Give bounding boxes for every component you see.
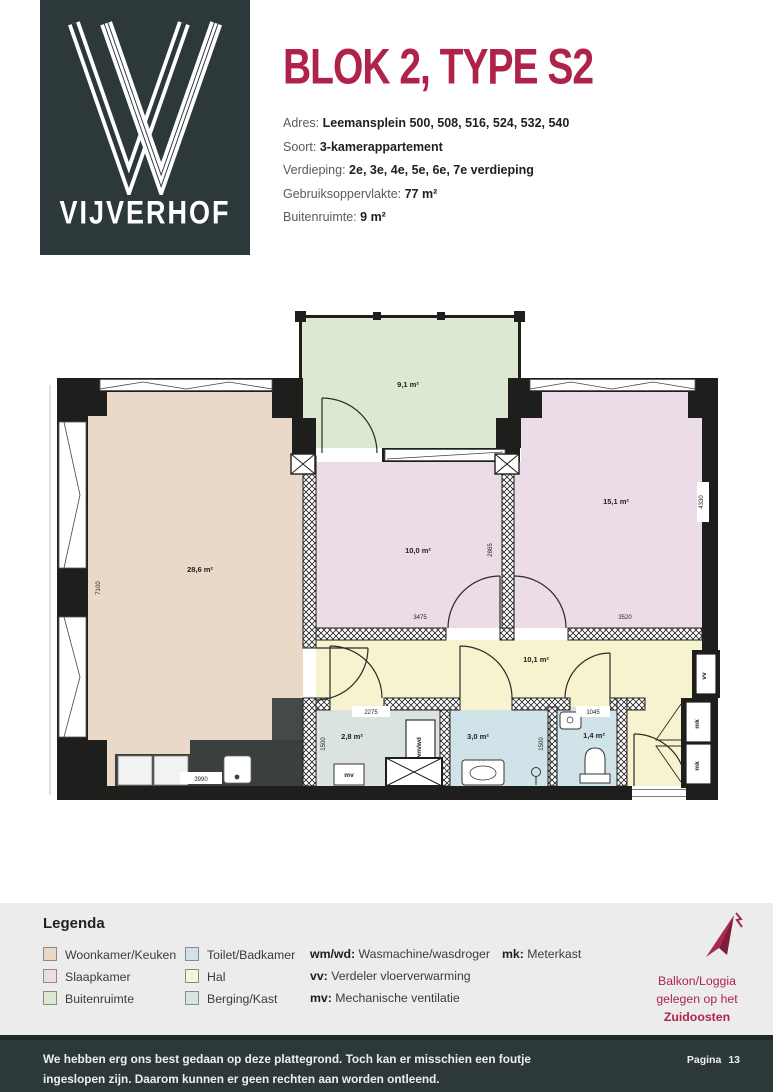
compass-line2: gelegen op het bbox=[622, 990, 772, 1008]
footer: We hebben erg ons best gedaan op deze pl… bbox=[0, 1035, 773, 1092]
swatch-outdoor bbox=[43, 991, 57, 1005]
compass: Balkon/Loggia gelegen op het Zuidoosten bbox=[622, 911, 772, 1026]
brochure-page: VIJVERHOF BLOK 2, TYPE S2 Adres: Leemans… bbox=[0, 0, 773, 1092]
compass-line1: Balkon/Loggia bbox=[622, 972, 772, 990]
label-vv: vv bbox=[701, 672, 708, 680]
disclaimer: We hebben erg ons best gedaan op deze pl… bbox=[43, 1049, 531, 1089]
room-living bbox=[88, 392, 303, 786]
info-value: 9 m² bbox=[360, 210, 386, 224]
info-row-soort: Soort: 3-kamerappartement bbox=[283, 136, 569, 160]
vijverhof-logo-icon bbox=[40, 10, 250, 195]
page-title: BLOK 2, TYPE S2 bbox=[283, 40, 593, 96]
info-label: Soort: bbox=[283, 140, 316, 154]
legend: Legenda Woonkamer/Keuken Slaapkamer Buit… bbox=[0, 903, 773, 1035]
info-label: Verdieping: bbox=[283, 163, 346, 177]
window-balcony bbox=[385, 450, 505, 461]
logo-wordmark: VIJVERHOF bbox=[40, 195, 250, 232]
legend-label: Woonkamer/Keuken bbox=[65, 948, 176, 962]
swatch-hall bbox=[185, 969, 199, 983]
window-left-2 bbox=[59, 617, 86, 737]
abbr-label: Mechanische ventilatie bbox=[335, 991, 459, 1005]
legend-label: Hal bbox=[207, 970, 225, 984]
window-left-1 bbox=[59, 422, 86, 568]
dim-bedroom1-width: 3475 bbox=[413, 615, 427, 621]
legend-title: Legenda bbox=[43, 915, 105, 932]
compass-text: Balkon/Loggia gelegen op het Zuidoosten bbox=[622, 972, 772, 1026]
legend-abbr-mv: mv: Mechanische ventilatie bbox=[310, 991, 460, 1005]
dim-bedroom2-height: 4330 bbox=[699, 495, 705, 509]
dim-bathroom-height: 1500 bbox=[539, 737, 545, 751]
label-balcony-area: 9,1 m² bbox=[397, 380, 419, 389]
legend-label: Toilet/Badkamer bbox=[207, 948, 295, 962]
label-living-area: 28,6 m² bbox=[187, 565, 213, 574]
disclaimer-line2: ingeslopen zijn. Daarom kunnen er geen r… bbox=[43, 1069, 531, 1089]
room-bedroom1 bbox=[316, 462, 502, 628]
label-mk-1: mk bbox=[694, 719, 701, 729]
label-hall-area: 10,1 m² bbox=[523, 655, 549, 664]
swatch-wet bbox=[185, 947, 199, 961]
info-value: 77 m² bbox=[405, 187, 438, 201]
abbr-key: mk: bbox=[502, 947, 524, 961]
abbr-label: Verdeler vloerverwarming bbox=[331, 969, 470, 983]
balcony-door-gap bbox=[316, 448, 382, 462]
legend-item-bedroom: Slaapkamer bbox=[43, 969, 131, 983]
legend-label: Buitenruimte bbox=[65, 992, 134, 1006]
info-row-oppervlakte: Gebruiksoppervlakte: 77 m² bbox=[283, 183, 569, 207]
info-value: 3-kamerappartement bbox=[320, 140, 443, 154]
abbr-key: mv: bbox=[310, 991, 332, 1005]
info-label: Buitenruimte: bbox=[283, 210, 357, 224]
disclaimer-line1: We hebben erg ons best gedaan op deze pl… bbox=[43, 1049, 531, 1069]
abbr-label: Wasmachine/wasdroger bbox=[359, 947, 490, 961]
compass-icon bbox=[700, 911, 746, 961]
swatch-living bbox=[43, 947, 57, 961]
label-bedroom1-area: 10,0 m² bbox=[405, 546, 431, 555]
legend-abbr-wmwd: wm/wd: Wasmachine/wasdroger bbox=[310, 947, 490, 961]
page-num: 13 bbox=[728, 1054, 740, 1066]
room-bedroom2 bbox=[514, 392, 702, 628]
logo: VIJVERHOF bbox=[40, 0, 250, 255]
info-row-buitenruimte: Buitenruimte: 9 m² bbox=[283, 206, 569, 230]
dim-bedroom1-height: 2865 bbox=[488, 543, 494, 557]
legend-item-wet: Toilet/Badkamer bbox=[185, 947, 295, 961]
label-bedroom2-area: 15,1 m² bbox=[603, 497, 629, 506]
dim-living-height: 7100 bbox=[96, 581, 102, 595]
info-label: Gebruiksoppervlakte: bbox=[283, 187, 401, 201]
legend-label: Slaapkamer bbox=[65, 970, 131, 984]
legend-label: Berging/Kast bbox=[207, 992, 277, 1006]
legend-item-living: Woonkamer/Keuken bbox=[43, 947, 176, 961]
label-storage-area: 2,8 m² bbox=[341, 732, 363, 741]
info-row-verdieping: Verdieping: 2e, 3e, 4e, 5e, 6e, 7e verdi… bbox=[283, 159, 569, 183]
page-label: Pagina bbox=[687, 1054, 721, 1066]
dim-bedroom2-width: 3520 bbox=[618, 615, 632, 621]
swatch-storage bbox=[185, 991, 199, 1005]
legend-abbr-mk: mk: Meterkast bbox=[502, 947, 581, 961]
label-mk-2: mk bbox=[694, 761, 701, 771]
dim-storage-width: 2275 bbox=[364, 710, 378, 716]
legend-item-storage: Berging/Kast bbox=[185, 991, 277, 1005]
floor-plan: 28,6 m² 9,1 m² 10,0 m² 15,1 m² 10,1 m² 2… bbox=[0, 270, 773, 892]
legend-item-hall: Hal bbox=[185, 969, 225, 983]
info-row-adres: Adres: Leemansplein 500, 508, 516, 524, … bbox=[283, 112, 569, 136]
page-number: Pagina13 bbox=[687, 1054, 740, 1066]
legend-item-outdoor: Buitenruimte bbox=[43, 991, 134, 1005]
abbr-label: Meterkast bbox=[527, 947, 581, 961]
apartment-info: Adres: Leemansplein 500, 508, 516, 524, … bbox=[283, 112, 569, 230]
entrance-gap bbox=[632, 786, 686, 800]
abbr-key: wm/wd: bbox=[310, 947, 355, 961]
info-value: Leemansplein 500, 508, 516, 524, 532, 54… bbox=[323, 116, 570, 130]
abbr-key: vv: bbox=[310, 969, 328, 983]
dim-toilet-width: 1045 bbox=[586, 710, 600, 716]
label-toilet-area: 1,4 m² bbox=[583, 731, 605, 740]
dim-storage-height: 1500 bbox=[321, 737, 327, 751]
swatch-bedroom bbox=[43, 969, 57, 983]
info-label: Adres: bbox=[283, 116, 319, 130]
legend-abbr-vv: vv: Verdeler vloerverwarming bbox=[310, 969, 471, 983]
info-value: 2e, 3e, 4e, 5e, 6e, 7e verdieping bbox=[349, 163, 534, 177]
bath-sink bbox=[462, 760, 504, 785]
dim-kitchen-width: 3990 bbox=[194, 777, 208, 783]
label-mv: mv bbox=[344, 772, 354, 779]
label-bathroom-area: 3,0 m² bbox=[467, 732, 489, 741]
label-wmwd: wm/wd bbox=[416, 737, 423, 760]
compass-orientation: Zuidoosten bbox=[622, 1008, 772, 1026]
